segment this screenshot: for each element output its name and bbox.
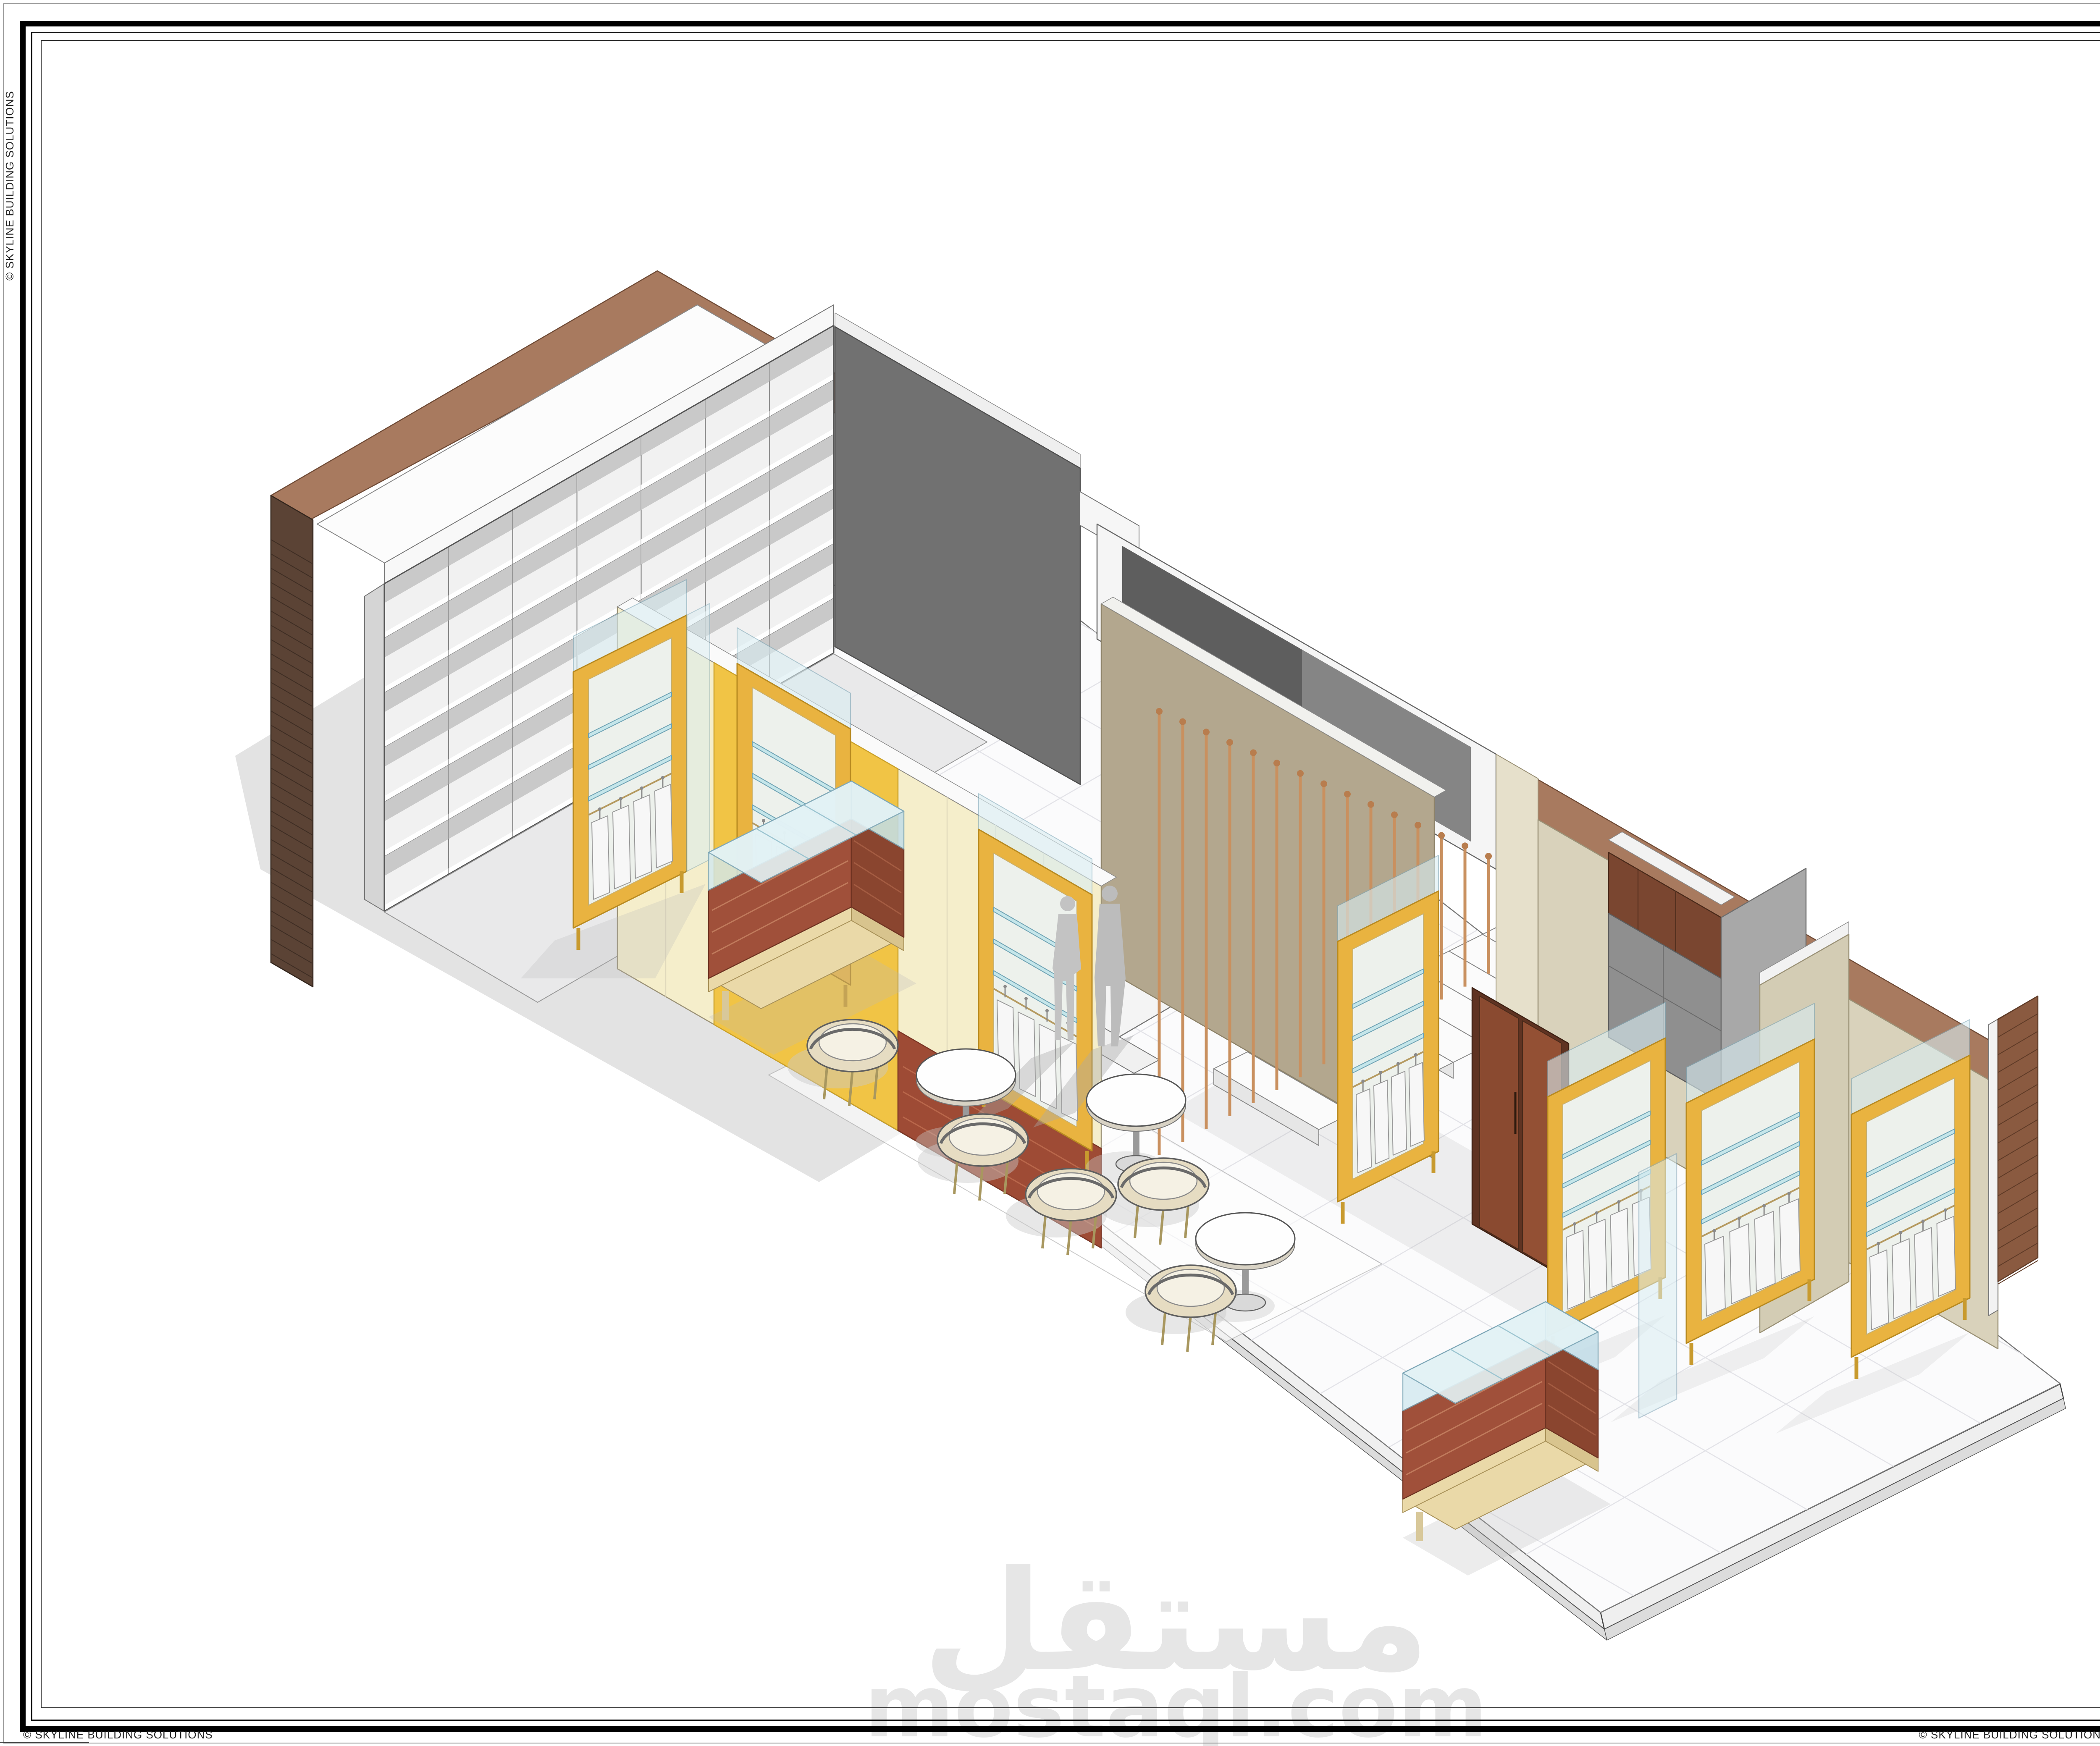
footer-copyright-left: © SKYLINE BUILDING SOLUTIONS [23, 1728, 213, 1741]
svg-text:mostaql.com: mostaql.com [864, 1657, 1488, 1746]
margin-copyright-vertical: © SKYLINE BUILDING SOLUTIONS [3, 91, 16, 281]
corner-tab-line [0, 1742, 89, 1743]
isometric-drawing-area: مستقلmostaql.com [41, 40, 2100, 1708]
isometric-view: مستقلmostaql.com [0, 0, 2100, 1746]
drawing-sheet: مستقلmostaql.com © SKYLINE BUILDING SOLU… [0, 0, 2100, 1746]
footer-copyright-right: © SKYLINE BUILDING SOLUTIONS - Email: mu… [1919, 1728, 2100, 1741]
